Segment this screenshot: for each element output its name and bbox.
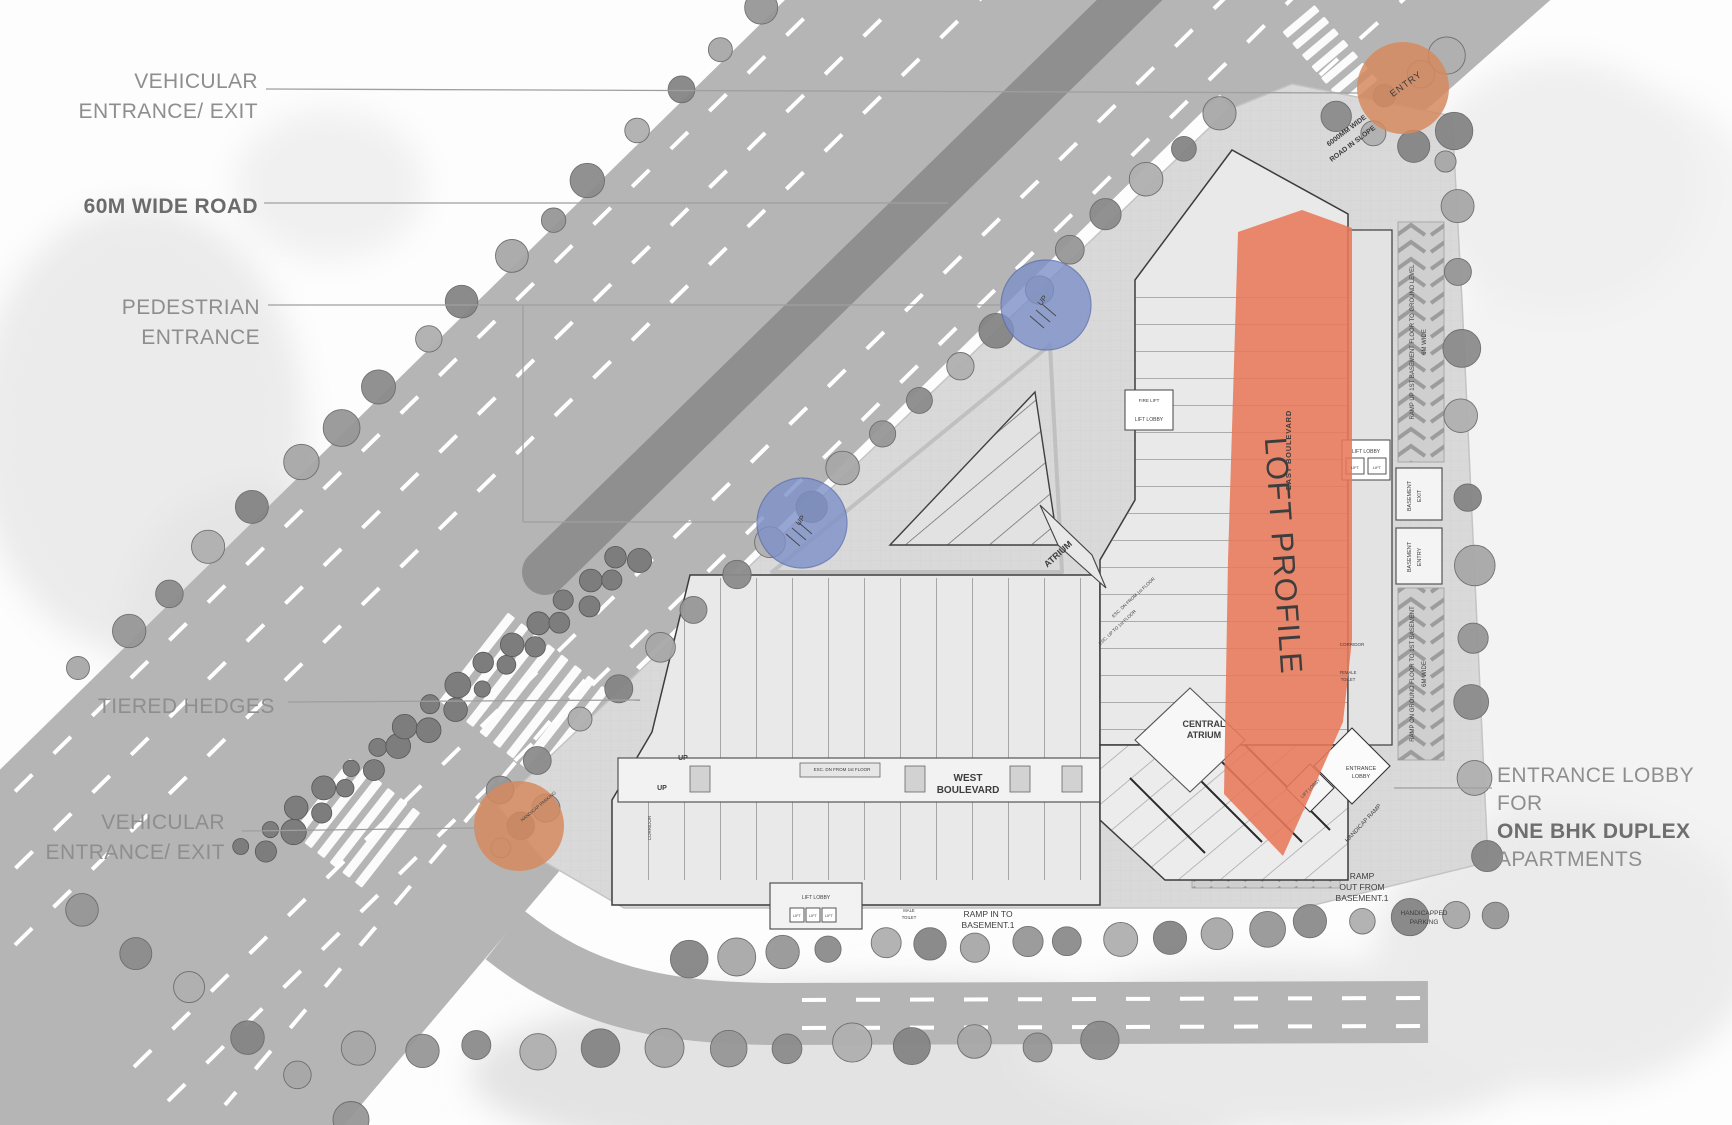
handicapped-parking-line1: HANDICAPPED (1401, 910, 1448, 917)
lift-label-4: LIFT (809, 914, 817, 918)
ramp-out-line3: BASEMENT.1 (1336, 893, 1389, 903)
callout-pedestrian-entrance: PEDESTRIAN ENTRANCE (22, 293, 260, 353)
basement-exit-line2: EXIT (1417, 489, 1423, 502)
west-boulevard-line1: WEST (954, 773, 983, 784)
female-toilet-line1: FEMALE (1340, 670, 1357, 675)
callout-vehicular-entrance-top: VEHICULAR ENTRANCE/ EXIT (40, 67, 258, 127)
callout-60m-wide-road: 60M WIDE ROAD (40, 192, 258, 222)
callout-line: TIERED HEDGES (98, 692, 288, 722)
ramp-in-line2: BASEMENT.1 (962, 920, 1015, 930)
basement-exit-line1: BASEMENT (1407, 480, 1413, 511)
basement-entry-line1: BASEMENT (1407, 541, 1413, 572)
east-lift-lobby-label: LIFT LOBBY (1352, 449, 1381, 455)
site-plan-drawing: LOFT PROFILE EAST BOULEVARD ENTRY HANDIC… (0, 0, 1732, 1125)
male-toilet-line1: MALE (903, 908, 915, 913)
lift-label-5: LIFT (825, 914, 833, 918)
fire-lift-label: FIRE LIFT (1139, 398, 1160, 403)
west-esc-label: ESC. DN FROM 1st FLOOR (814, 767, 872, 772)
callout-tiered-hedges: TIERED HEDGES (98, 692, 288, 722)
central-atrium-line2: ATRIUM (1187, 730, 1221, 740)
callout-line: ENTRANCE LOBBY FOR (1497, 762, 1729, 818)
callout-line: PEDESTRIAN ENTRANCE (22, 293, 260, 353)
lift-label-2: LIFT (1373, 465, 1382, 470)
entrance-lobby-line2: LOBBY (1352, 774, 1371, 780)
lift-label-3: LIFT (793, 914, 801, 918)
east-strip (1348, 230, 1392, 745)
basement-entry-line2: ENTRY (1417, 547, 1423, 566)
north-lift-lobby-box (1125, 390, 1173, 430)
ramp-up-east-line2: 6M WIDE (1422, 329, 1428, 355)
ramp-up-east-line1: RAMP UP 1ST BASEMENT FLOOR TO GROUND LEV… (1410, 264, 1416, 420)
east-corridor-label: CORRIDOR (1340, 642, 1365, 647)
ramp-down-east-line1: RAMP ON GROUND FLOOR TO 1ST BASEMENT (1410, 606, 1416, 742)
west-lift-lobby-label: LIFT LOBBY (802, 895, 831, 901)
up-label-plaza2: UP (657, 785, 667, 792)
site-plan-canvas: LOFT PROFILE EAST BOULEVARD ENTRY HANDIC… (0, 0, 1732, 1125)
callout-line: ENTRANCE/ EXIT (20, 838, 225, 868)
callout-line: VEHICULAR (20, 808, 225, 838)
west-boulevard-line2: BOULEVARD (937, 785, 1000, 796)
pedestrian-circle-1 (1001, 260, 1091, 350)
lift-label-1: LIFT (1351, 465, 1360, 470)
female-toilet-line2: TOILET (1341, 677, 1356, 682)
west-corridor-label: CORRIDOR (647, 815, 652, 840)
male-toilet-line2: TOILET (902, 915, 917, 920)
callout-line: ONE BHK DUPLEX (1497, 818, 1729, 846)
callout-line: 60M WIDE ROAD (40, 192, 258, 222)
ramp-out-line2: OUT FROM (1339, 882, 1384, 892)
entrance-lobby-line1: ENTRANCE (1346, 766, 1377, 772)
callout-line: APARTMENTS (1497, 846, 1729, 874)
ramp-out-line1: RAMP (1350, 871, 1375, 881)
ramp-down-east-line2: 6M WIDE (1422, 661, 1428, 687)
callout-line: ENTRANCE/ EXIT (40, 97, 258, 127)
central-atrium-line1: CENTRAL (1183, 719, 1226, 729)
ramp-in-line1: RAMP IN TO (963, 909, 1013, 919)
handicapped-parking-line2: PARKING (1410, 919, 1439, 926)
callout-vehicular-entrance-bottom: VEHICULAR ENTRANCE/ EXIT (20, 808, 225, 868)
callout-line: VEHICULAR (40, 67, 258, 97)
north-lift-lobby-label: LIFT LOBBY (1135, 417, 1164, 423)
callout-entrance-lobby: ENTRANCE LOBBY FOR ONE BHK DUPLEX APARTM… (1497, 762, 1729, 874)
east-boulevard-label: EAST BOULEVARD (1284, 410, 1293, 490)
up-label-plaza1: UP (678, 755, 688, 762)
